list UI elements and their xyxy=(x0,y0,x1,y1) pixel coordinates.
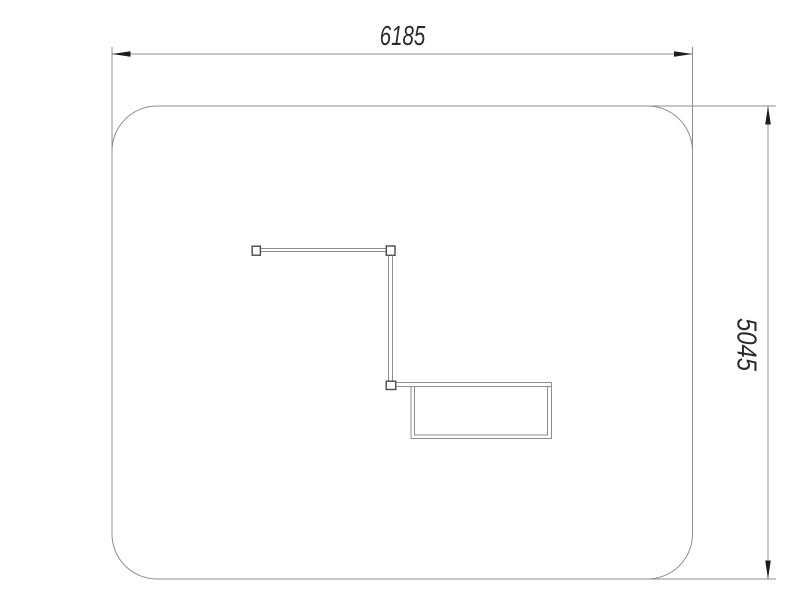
svg-text:6185: 6185 xyxy=(380,20,426,51)
svg-text:5045: 5045 xyxy=(732,318,763,371)
